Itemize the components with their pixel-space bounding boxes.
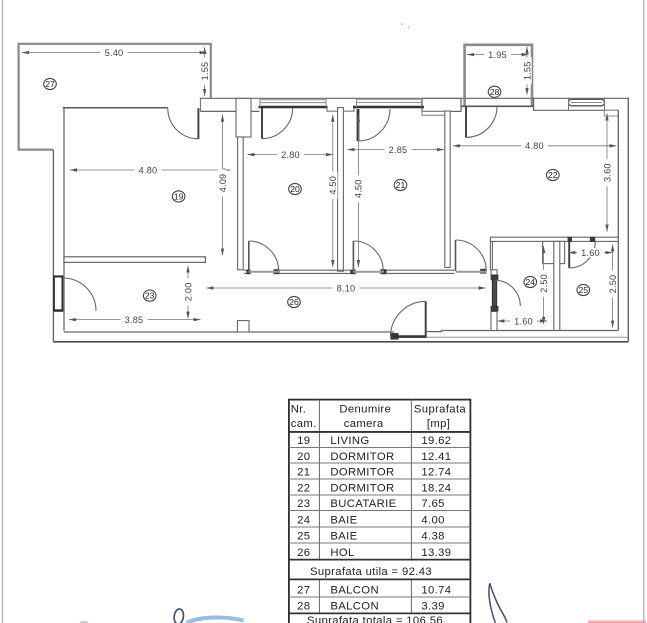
svg-text:5.40: 5.40: [105, 48, 124, 58]
svg-text:3.60: 3.60: [602, 163, 612, 182]
svg-text:1.95: 1.95: [488, 50, 507, 60]
svg-text:4.80: 4.80: [139, 165, 158, 175]
svg-text:21: 21: [297, 467, 310, 479]
svg-text:28: 28: [490, 87, 500, 97]
svg-text:18.24: 18.24: [421, 483, 451, 495]
svg-text:2.50: 2.50: [539, 274, 549, 293]
svg-text:4.50: 4.50: [328, 176, 338, 195]
svg-text:BALCON: BALCON: [330, 601, 379, 613]
svg-text:4.09: 4.09: [218, 174, 228, 193]
svg-text:Denumire: Denumire: [339, 404, 391, 416]
svg-text:3.39: 3.39: [421, 601, 444, 613]
svg-text:1.55: 1.55: [522, 61, 532, 80]
svg-text:7.65: 7.65: [421, 498, 444, 510]
svg-text:BALCON: BALCON: [330, 585, 379, 597]
svg-text:13.39: 13.39: [421, 547, 451, 559]
svg-text:26: 26: [297, 547, 310, 559]
svg-text:camera: camera: [344, 418, 384, 430]
svg-text:2.80: 2.80: [281, 150, 300, 160]
svg-text:LIVING: LIVING: [330, 435, 369, 447]
svg-text:28: 28: [297, 601, 310, 613]
svg-text:Suprafata: Suprafata: [414, 404, 467, 416]
svg-text:25: 25: [297, 530, 310, 542]
svg-text:1.55: 1.55: [200, 62, 210, 81]
svg-text:19.62: 19.62: [421, 435, 451, 447]
svg-text:4.80: 4.80: [525, 141, 544, 151]
svg-text:10.74: 10.74: [421, 585, 451, 597]
svg-text:22: 22: [548, 170, 558, 180]
svg-text:BAIE: BAIE: [330, 530, 357, 542]
svg-text:DORMITOR: DORMITOR: [330, 483, 394, 495]
svg-text:24: 24: [297, 514, 310, 526]
svg-text:HOL: HOL: [330, 547, 354, 559]
svg-text:23: 23: [145, 291, 155, 301]
svg-text:21: 21: [396, 180, 406, 190]
svg-text:2.50: 2.50: [608, 275, 618, 294]
svg-text:cam.: cam.: [291, 418, 317, 430]
svg-text:Suprafata totala = 106.56: Suprafata totala = 106.56: [307, 615, 443, 623]
svg-text:12.74: 12.74: [421, 467, 451, 479]
svg-text:4.38: 4.38: [421, 530, 444, 542]
svg-text:Nr.: Nr.: [291, 404, 307, 416]
svg-text:1.60: 1.60: [581, 248, 600, 258]
svg-text:22: 22: [297, 483, 310, 495]
svg-text:2.00: 2.00: [183, 282, 193, 301]
svg-text:DORMITOR: DORMITOR: [330, 467, 394, 479]
svg-text:25: 25: [579, 285, 589, 295]
svg-text:3.85: 3.85: [125, 315, 144, 325]
svg-text:BAIE: BAIE: [330, 514, 357, 526]
svg-text:BUCATARIE: BUCATARIE: [330, 498, 396, 510]
svg-text:27: 27: [45, 79, 55, 89]
svg-text:4.50: 4.50: [354, 179, 364, 198]
svg-text:2.85: 2.85: [389, 145, 408, 155]
svg-text:24: 24: [526, 277, 536, 287]
svg-text:20: 20: [297, 451, 310, 463]
svg-text:19: 19: [174, 192, 184, 202]
svg-text:4.00: 4.00: [421, 514, 444, 526]
svg-text:12.41: 12.41: [421, 451, 451, 463]
svg-text:8.10: 8.10: [337, 283, 356, 293]
svg-text:23: 23: [297, 498, 310, 510]
svg-text:Suprafata utila = 92.43: Suprafata utila = 92.43: [310, 566, 432, 578]
svg-text:19: 19: [297, 435, 310, 447]
svg-text:20: 20: [290, 184, 300, 194]
svg-text:DORMITOR: DORMITOR: [330, 451, 394, 463]
svg-text:27: 27: [297, 585, 310, 597]
svg-text:26: 26: [289, 297, 299, 307]
svg-text:[mp]: [mp]: [427, 418, 450, 430]
svg-text:1.60: 1.60: [514, 316, 533, 326]
